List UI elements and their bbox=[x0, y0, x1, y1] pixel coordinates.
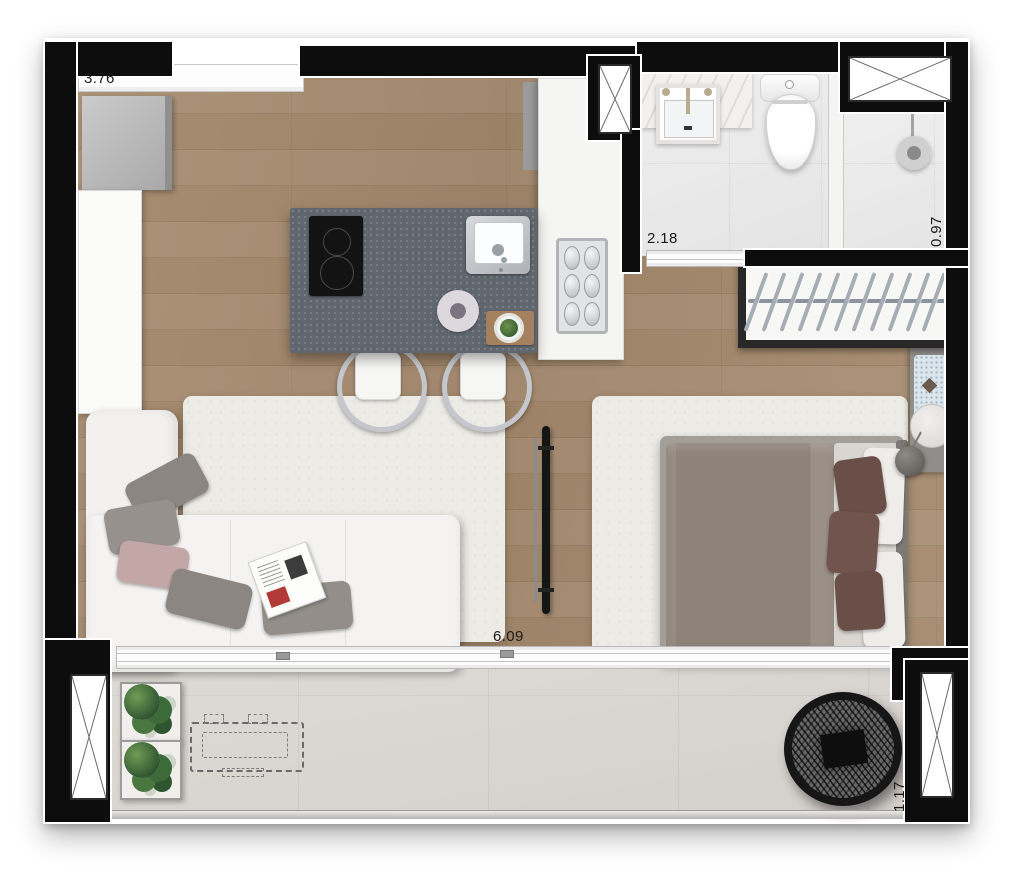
future-bench-tab bbox=[222, 768, 264, 777]
bathroom-door bbox=[646, 250, 748, 267]
tv-mount bbox=[538, 588, 554, 592]
tv-screen bbox=[542, 426, 550, 614]
shaft-symbol bbox=[920, 672, 954, 798]
kitchen-counter-left bbox=[78, 190, 142, 414]
magazine-dark-block bbox=[284, 555, 308, 580]
future-bench-tab bbox=[248, 714, 268, 724]
dim-label-bathroom-width: 2.18 bbox=[647, 230, 678, 247]
bed-duvet bbox=[666, 443, 834, 655]
window-symbol bbox=[848, 56, 952, 102]
kitchen-tall-cabinet-side bbox=[523, 82, 538, 170]
shaft-symbol bbox=[598, 64, 632, 134]
faucet-knob-icon bbox=[704, 88, 712, 96]
dim-label-kitchen-width: 3.76 bbox=[84, 70, 115, 87]
wall-bathroom-bottom bbox=[745, 250, 968, 266]
wall-top-bathroom bbox=[637, 42, 842, 72]
cooktop-burner bbox=[320, 256, 354, 290]
glass-icon bbox=[584, 246, 600, 270]
wall-kitchen-bathroom bbox=[622, 130, 640, 272]
glass-icon bbox=[584, 302, 600, 326]
ball-lamp-icon bbox=[895, 446, 925, 476]
toilet-flush-button bbox=[785, 80, 794, 89]
balcony-railing bbox=[106, 810, 962, 819]
drain-dot bbox=[684, 126, 692, 130]
shaft-symbol bbox=[70, 674, 108, 800]
glass-icon bbox=[584, 274, 600, 298]
toilet-seat-line bbox=[772, 100, 808, 104]
island-faucet-icon bbox=[492, 244, 504, 256]
dim-label-living-width: 6.09 bbox=[493, 628, 524, 645]
island-sink-basin bbox=[474, 222, 524, 264]
magazine-text-lines bbox=[257, 559, 285, 587]
bar-stool bbox=[337, 342, 427, 432]
wardrobe-interior bbox=[746, 266, 948, 340]
plant-icon bbox=[124, 742, 160, 778]
glass-icon bbox=[564, 302, 580, 326]
door-handle-icon bbox=[500, 650, 514, 658]
glass-icon bbox=[564, 274, 580, 298]
tv-mount bbox=[538, 446, 554, 450]
glass-tray bbox=[556, 238, 608, 334]
future-bench-tab bbox=[204, 714, 224, 724]
faucet-spout-icon bbox=[686, 88, 690, 114]
plant-icon bbox=[124, 684, 160, 720]
herbs-icon bbox=[500, 319, 518, 337]
dim-label-balcony-depth: 1.17 bbox=[891, 781, 908, 812]
bed-pillow-brown bbox=[826, 510, 880, 575]
wardrobe bbox=[738, 258, 956, 348]
glass-icon bbox=[564, 246, 580, 270]
stool-seat bbox=[460, 352, 506, 400]
faucet-knob-icon bbox=[662, 88, 670, 96]
magazine-red-block bbox=[266, 586, 290, 608]
floor-plan-canvas: 3.76 2.18 0.97 6.09 1.17 bbox=[0, 0, 1024, 881]
cooktop-burner bbox=[323, 228, 351, 256]
stool-seat bbox=[355, 352, 401, 400]
wire-chair-seat bbox=[820, 729, 868, 769]
wire-chair bbox=[784, 692, 902, 806]
bed-pillow-brown bbox=[834, 570, 886, 631]
door-handle-icon bbox=[276, 652, 290, 660]
decor-plate bbox=[437, 290, 479, 332]
bed-pillow-brown bbox=[832, 455, 888, 519]
shower-drain-icon bbox=[897, 136, 931, 170]
wall-right bbox=[946, 42, 968, 662]
future-bench-inner bbox=[202, 732, 288, 758]
bar-stool bbox=[442, 342, 532, 432]
tv-shadow-line bbox=[534, 438, 537, 602]
dim-label-shower-width: 0.97 bbox=[928, 216, 945, 247]
kitchen-appliance-box bbox=[82, 96, 172, 190]
future-bench-outline bbox=[190, 722, 304, 772]
